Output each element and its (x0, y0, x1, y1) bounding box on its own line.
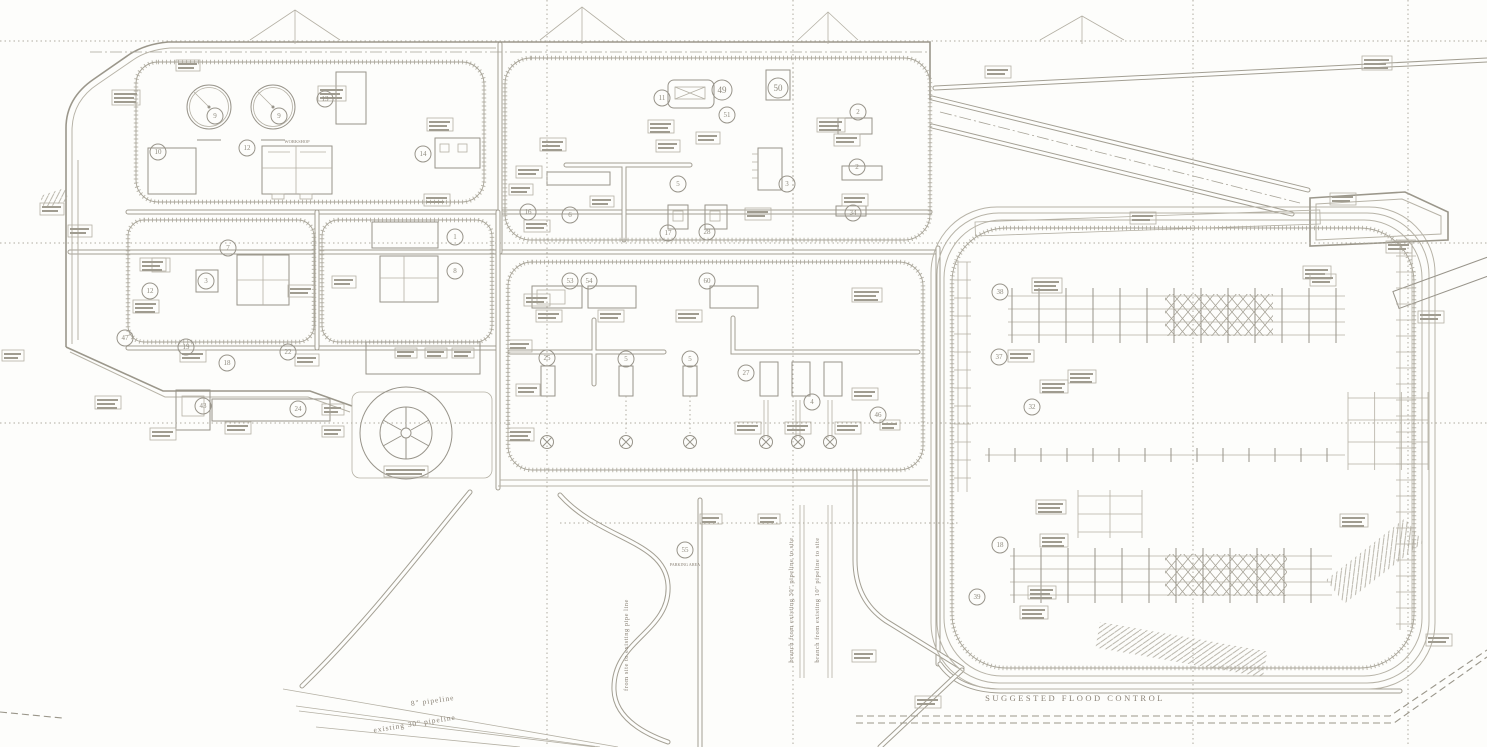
annotation-box (835, 422, 861, 434)
annotation-box (516, 384, 540, 396)
annotation-box (516, 166, 542, 178)
map-label-4: branch from existing 10" pipeline to sit… (814, 537, 821, 662)
valve-icon (543, 438, 552, 447)
valve-symbols (541, 436, 837, 449)
site-plan-drawing: 9910121314731218471918224324114951502234… (0, 0, 1487, 747)
callout-number-32: 32 (1029, 403, 1037, 411)
map-label-7: PARKING AREA (670, 562, 700, 567)
callout-number-38: 38 (997, 288, 1005, 296)
callout-number-50: 50 (774, 83, 784, 93)
annotation-box (524, 220, 550, 232)
annotation-box (842, 194, 868, 206)
callout-number-9: 9 (277, 112, 281, 120)
tank-radius (258, 92, 273, 107)
annotation-boxes (2, 56, 1452, 708)
callout-number-34: 34 (850, 209, 858, 217)
callout-number-6: 6 (568, 211, 572, 219)
annotation-box (1426, 634, 1452, 646)
callout-number-18: 18 (224, 359, 232, 367)
callout-number-22: 22 (285, 348, 293, 356)
annotation-box (590, 196, 614, 207)
conveyor-truss (1393, 251, 1487, 309)
callout-number-5: 5 (624, 355, 628, 363)
callout-number-3: 3 (785, 180, 789, 188)
annotation-box (384, 466, 428, 477)
callout-number-9: 9 (213, 112, 217, 120)
tank-center (208, 106, 211, 109)
site-plan-sheet: 9910121314731218471918224324114951502234… (0, 0, 1487, 747)
map-label-5: from site to existing pipe line (623, 599, 630, 691)
annotation-box (785, 422, 811, 434)
annotation-box (985, 66, 1011, 78)
callout-number-53: 53 (567, 277, 575, 285)
berm-profile (540, 7, 625, 40)
callout-number-60: 60 (704, 277, 712, 285)
callout-number-28: 28 (704, 228, 712, 236)
callout-number-43: 43 (200, 402, 208, 410)
fountain-circle (352, 387, 492, 479)
terrain-berms (250, 7, 1124, 44)
x-brace-section (1165, 294, 1273, 336)
callout-number-54: 54 (586, 277, 594, 285)
annotation-box (225, 422, 251, 434)
callout-number-12: 12 (244, 144, 252, 152)
north-access-area (1310, 192, 1487, 308)
callout-number-27: 27 (743, 369, 751, 377)
callout-number-3: 3 (204, 277, 208, 285)
callout-number-16: 16 (525, 208, 533, 216)
callout-number-49: 49 (718, 85, 728, 95)
callout-number-39: 39 (974, 593, 982, 601)
annotation-box (834, 134, 860, 146)
pipelines-and-flood-control (0, 58, 1487, 747)
valve-icon (762, 438, 771, 447)
map-label-2: existing 30" pipeline (373, 713, 457, 735)
tank-radius (194, 92, 209, 107)
tank-center (272, 106, 275, 109)
callout-number-5: 5 (676, 180, 680, 188)
annotation-box (852, 650, 876, 662)
annotation-box (288, 285, 314, 297)
annotation-box (322, 426, 344, 437)
map-label-3: branch from existing 30" pipeline to sit… (788, 537, 795, 662)
annotation-box (2, 350, 24, 361)
callout-number-8: 8 (453, 267, 457, 275)
callout-number-18: 18 (997, 541, 1005, 549)
callout-number-47: 47 (122, 334, 130, 342)
annotation-box (150, 428, 176, 440)
annotation-box (598, 310, 624, 322)
annotation-box (852, 388, 878, 400)
landscape-areas (352, 342, 492, 479)
callout-number-5: 5 (688, 355, 692, 363)
callout-number-12: 12 (147, 287, 155, 295)
callout-number-37: 37 (996, 353, 1004, 361)
callout-number-51: 51 (724, 111, 732, 119)
map-label-0: SUGGESTED FLOOD CONTROL (985, 693, 1165, 703)
callout-number-2: 2 (856, 108, 860, 116)
valve-icon (826, 438, 835, 447)
annotation-box (1008, 350, 1034, 362)
callout-number-17: 17 (665, 229, 673, 237)
map-label-1: 8" pipeline (410, 693, 455, 708)
callout-number-7: 7 (226, 244, 230, 252)
annotation-box (676, 310, 702, 322)
valve-icon (686, 438, 695, 447)
callout-number-1: 1 (453, 233, 457, 241)
annotation-box (1130, 212, 1156, 224)
annotation-box (536, 310, 562, 322)
callout-number-4: 4 (810, 398, 814, 406)
annotation-box (656, 140, 680, 152)
callout-number-55: 55 (682, 546, 690, 554)
annotation-box (332, 276, 356, 288)
annotation-box (1310, 274, 1336, 286)
callout-number-24: 24 (295, 405, 303, 413)
annotation-box (295, 354, 319, 366)
annotation-box (696, 132, 720, 144)
callout-number-46: 46 (875, 411, 883, 419)
x-brace-section (1165, 554, 1287, 596)
valve-icon (622, 438, 631, 447)
annotation-box (735, 422, 761, 434)
callout-number-11: 11 (659, 94, 666, 102)
callout-number-10: 10 (155, 148, 163, 156)
callout-number-25: 25 (544, 354, 552, 362)
callout-number-19: 19 (183, 343, 191, 351)
callout-number-14: 14 (420, 150, 428, 158)
parking-ticks (975, 210, 1320, 236)
callout-number-13: 13 (322, 95, 330, 103)
callout-number-2: 2 (855, 163, 859, 171)
valve-icon (794, 438, 803, 447)
annotation-box (509, 184, 533, 195)
map-label-6: WORKSHOP (284, 139, 310, 144)
